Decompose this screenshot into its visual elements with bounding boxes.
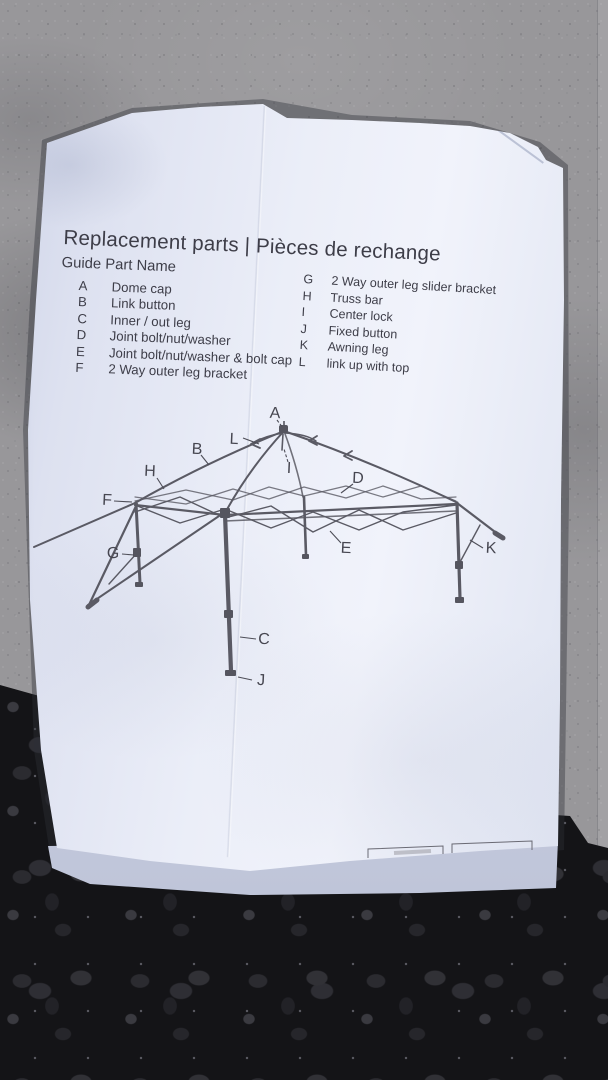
parts-list-right: G 2 Way outer leg slider bracket H Truss…	[298, 271, 496, 381]
diagram-label-e: E	[340, 540, 351, 558]
diagram-label-d: D	[352, 470, 364, 488]
part-key: D	[76, 327, 110, 345]
diagram-label-k: K	[485, 540, 496, 558]
diagram-label-g: G	[106, 545, 119, 564]
parts-list-left: A Dome cap B Link button C Inner / out l…	[75, 278, 295, 385]
part-key: L	[298, 353, 327, 371]
part-key: C	[77, 311, 111, 329]
part-key: H	[302, 287, 331, 305]
diagram-label-h: H	[144, 463, 156, 481]
part-key: A	[78, 278, 112, 296]
part-key: I	[301, 304, 330, 322]
diagram-label-a: A	[269, 405, 280, 423]
part-key: G	[303, 271, 332, 289]
diagram-label-b: B	[191, 441, 202, 459]
pavement-edge-strip	[597, 0, 608, 858]
diagram-label-f: F	[102, 492, 113, 510]
diagram-label-j: J	[257, 672, 266, 690]
diagram-label-l: L	[229, 431, 239, 449]
part-key: K	[299, 337, 328, 355]
photo-scene: Replacement parts | Pièces de rechange G…	[0, 0, 608, 1080]
diagram-label-c: C	[258, 631, 270, 649]
diagram-label-i: I	[286, 460, 291, 478]
part-key: E	[76, 344, 110, 362]
part-key: B	[78, 294, 112, 312]
part-key: F	[75, 360, 109, 378]
part-key: J	[300, 320, 329, 338]
